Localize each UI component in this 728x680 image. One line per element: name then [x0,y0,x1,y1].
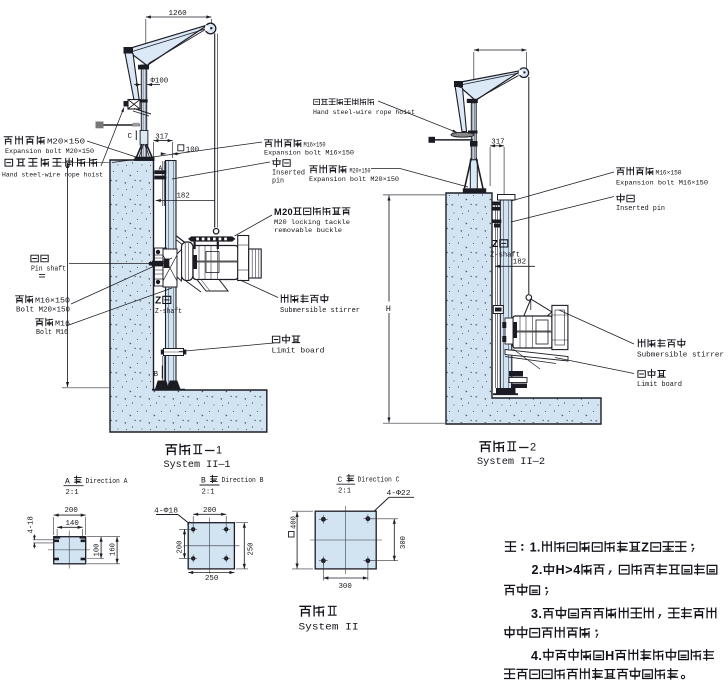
svg-text:M16: M16 [55,320,70,328]
svg-text:Limit board: Limit board [637,381,682,389]
svg-text:Bolt M20×150: Bolt M20×150 [16,306,70,314]
svg-text:182: 182 [177,193,190,201]
svg-text:182: 182 [513,258,526,266]
svg-text:200: 200 [65,507,78,515]
svg-text:System II—2: System II—2 [477,456,545,467]
svg-text:200: 200 [177,541,185,554]
svg-text:100: 100 [186,146,199,154]
svg-text:4: 4 [573,563,580,577]
svg-text:M16×150: M16×150 [304,142,326,149]
svg-text:160: 160 [110,543,118,556]
svg-text:Hand steel-wire rope hoist: Hand steel-wire rope hoist [2,171,103,178]
svg-text:Pin shaft: Pin shaft [31,265,66,273]
svg-text:4: 4 [531,649,538,663]
svg-text:Z-shaft: Z-shaft [155,308,182,316]
svg-text:1260: 1260 [169,10,188,18]
svg-text:M16×150: M16×150 [656,170,682,178]
svg-text:H: H [556,563,565,577]
svg-text:2: 2 [530,442,536,454]
svg-text:Z: Z [155,296,161,307]
svg-text:Z: Z [492,239,498,250]
svg-text:M20×150: M20×150 [47,139,85,147]
svg-text:0: 0 [288,207,293,217]
svg-text:4-Φ22: 4-Φ22 [387,490,411,498]
svg-text:Inserted pin: Inserted pin [616,205,665,213]
svg-text:System II—1: System II—1 [164,459,231,470]
svg-text:300: 300 [400,536,408,549]
svg-text:Submersible stirrer: Submersible stirrer [637,351,724,359]
svg-text:Z: Z [641,541,649,555]
svg-text:1: 1 [530,541,537,555]
svg-text:.: . [538,649,542,663]
svg-text:Bolt M16: Bolt M16 [36,329,68,337]
svg-text:C: C [338,476,343,485]
svg-text:B: B [201,477,206,486]
svg-text:3: 3 [531,607,538,621]
svg-text:2:1: 2:1 [66,489,80,497]
svg-text:Limit board: Limit board [272,347,325,355]
svg-text:.: . [538,607,542,621]
svg-text:2: 2 [282,207,287,217]
svg-text:Direction A: Direction A [86,478,129,486]
svg-text:removable buckle: removable buckle [274,227,342,235]
svg-text:>: > [565,563,572,577]
svg-text:2:1: 2:1 [202,488,216,496]
svg-text:B: B [154,371,159,379]
svg-text:Direction B: Direction B [222,477,265,485]
svg-text:A: A [65,477,70,486]
svg-text:Direction C: Direction C [358,477,401,485]
svg-text:Expansion bolt M16×150: Expansion bolt M16×150 [264,150,354,158]
svg-text:System II: System II [299,621,359,632]
svg-text:250: 250 [205,575,218,583]
svg-text:.: . [539,563,543,577]
svg-text:Submersible stirrer: Submersible stirrer [280,307,360,315]
svg-text:300: 300 [339,583,352,591]
svg-text:1: 1 [216,445,222,457]
svg-text:M20×150: M20×150 [350,168,371,175]
svg-text:H: H [605,649,614,663]
svg-text:200: 200 [203,507,216,515]
svg-text:Expansion bolt M20×150: Expansion bolt M20×150 [5,148,94,156]
svg-text:2: 2 [532,563,539,577]
svg-text:M: M [274,207,282,217]
svg-text:2:1: 2:1 [338,488,352,496]
svg-text:M16×150: M16×150 [35,297,70,305]
svg-text:140: 140 [66,520,79,528]
svg-text:.: . [537,541,541,555]
svg-text:H: H [386,304,391,314]
svg-text:Inserted: Inserted [272,169,305,177]
svg-text:Expansion bolt M20×150: Expansion bolt M20×150 [309,176,399,184]
svg-text:pin: pin [272,178,284,186]
svg-text:4-18: 4-18 [27,516,35,533]
svg-text:M20 locking tackle: M20 locking tackle [274,219,350,227]
svg-text:250: 250 [248,543,256,556]
svg-text:Expansion bolt M16×150: Expansion bolt M16×150 [616,179,708,187]
svg-text:A: A [159,165,163,172]
svg-text:C: C [128,133,133,141]
